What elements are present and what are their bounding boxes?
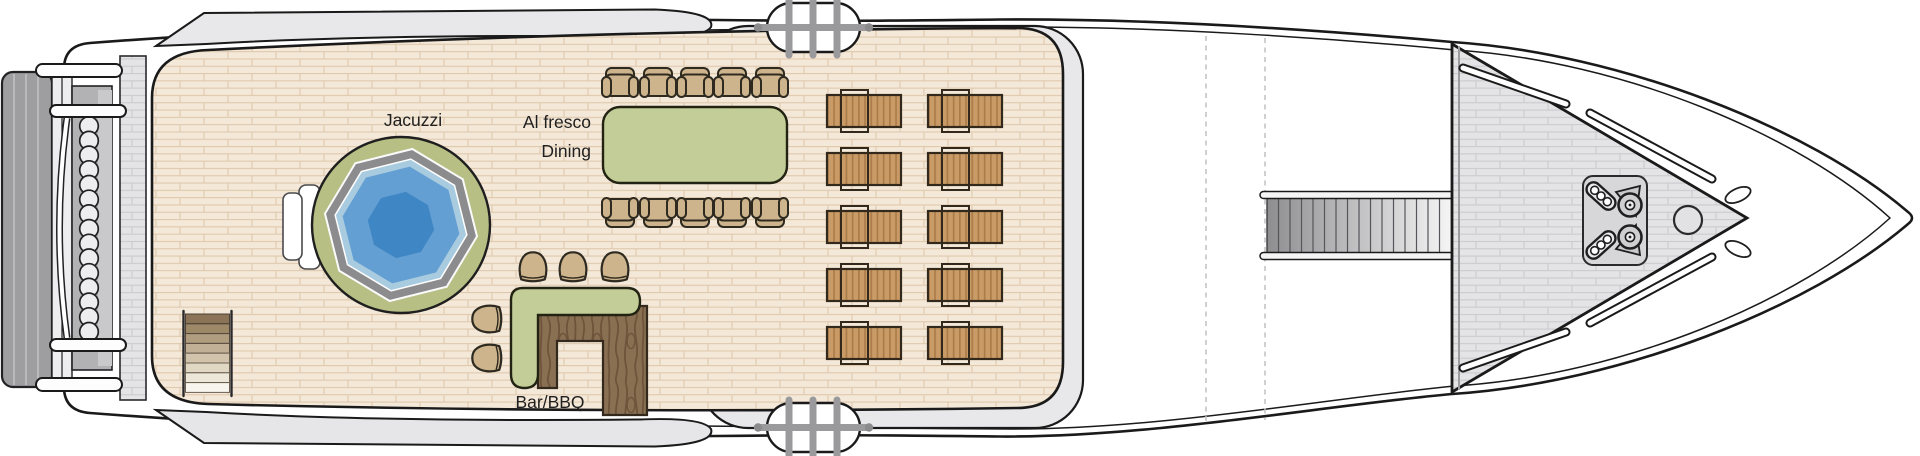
dining-chairs-top: [602, 68, 788, 97]
staircase-rail-bottom: [1260, 253, 1456, 260]
jacuzzi-label: Jacuzzi: [384, 110, 442, 130]
stern-fender-chain: [80, 117, 99, 341]
capstan-circle: [1674, 206, 1702, 234]
deck-stairs: [184, 311, 232, 396]
deck-plan-drawing: Jacuzzi Al fresco Dining Bar/BBQ: [0, 0, 1920, 456]
dining-table: [603, 107, 787, 183]
bar-stools-top: [520, 252, 629, 281]
jacuzzi-steps-inner: [283, 193, 302, 260]
stern-assembly: [2, 56, 146, 400]
anchor-winch-unit: [1583, 176, 1647, 265]
deck-plan-canvas: Jacuzzi Al fresco Dining Bar/BBQ: [0, 0, 1920, 456]
al-fresco-dining: [602, 68, 788, 227]
dining-label-line1: Al fresco: [523, 112, 591, 132]
dining-label-line2: Dining: [541, 141, 591, 161]
stern-panel-light: [98, 90, 112, 366]
dining-chairs-bottom: [602, 198, 788, 227]
sun-deck: Jacuzzi Al fresco Dining Bar/BBQ: [152, 28, 1063, 415]
foredeck-staircase: [1260, 192, 1456, 260]
bar-label: Bar/BBQ: [515, 392, 584, 412]
stern-platform: [2, 72, 52, 387]
staircase-rail-top: [1260, 192, 1456, 199]
